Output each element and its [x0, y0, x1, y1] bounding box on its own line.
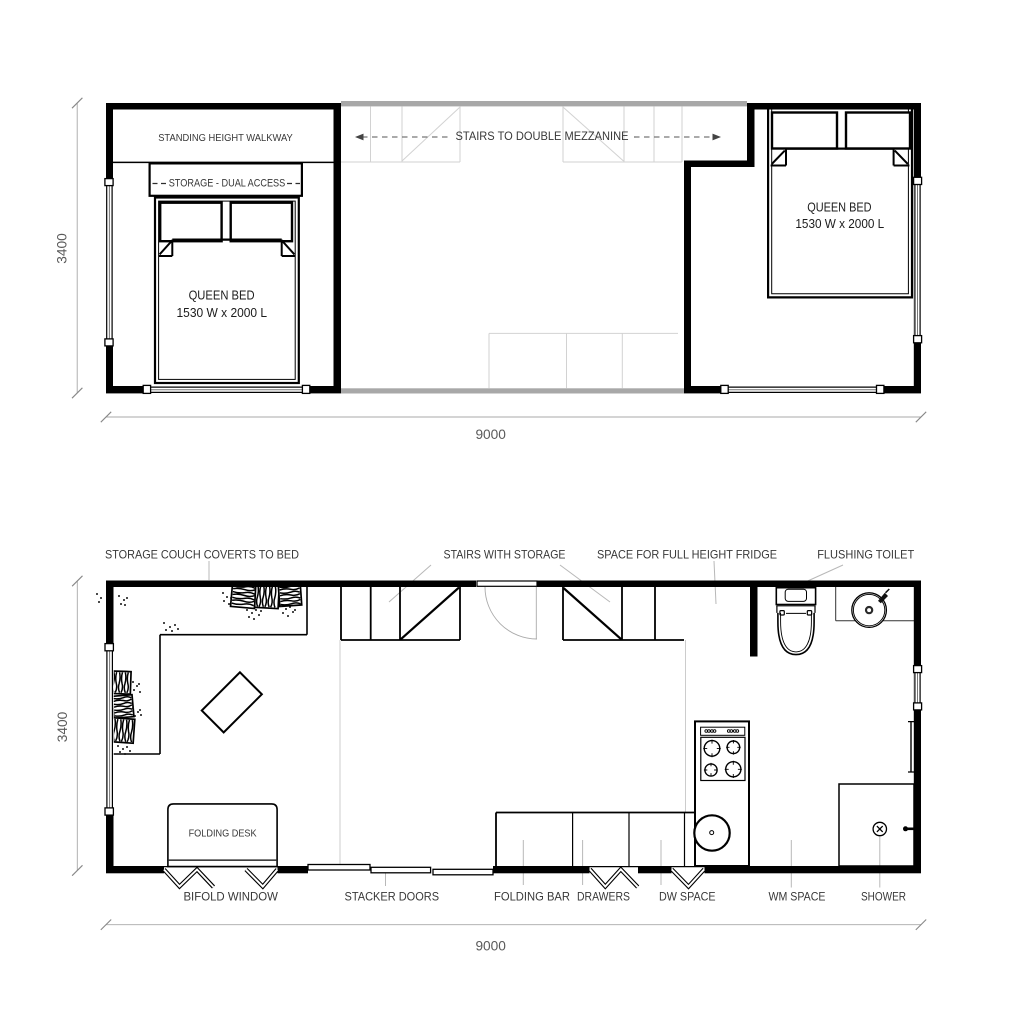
svg-text:SHOWER: SHOWER	[861, 890, 906, 904]
svg-text:STORAGE COUCH COVERTS TO BED: STORAGE COUCH COVERTS TO BED	[105, 548, 299, 562]
svg-text:SPACE FOR FULL HEIGHT FRIDGE: SPACE FOR FULL HEIGHT FRIDGE	[597, 548, 777, 562]
svg-text:STAIRS TO DOUBLE MEZZANINE: STAIRS TO DOUBLE MEZZANINE	[456, 130, 629, 143]
svg-text:WM SPACE: WM SPACE	[769, 890, 826, 904]
svg-text:QUEEN BED: QUEEN BED	[807, 199, 871, 214]
svg-text:DW SPACE: DW SPACE	[659, 890, 716, 904]
svg-text:1530 W x 2000 L: 1530 W x 2000 L	[795, 216, 884, 231]
svg-text:9000: 9000	[475, 426, 506, 442]
svg-text:STANDING HEIGHT WALKWAY: STANDING HEIGHT WALKWAY	[158, 133, 293, 144]
svg-text:3400: 3400	[54, 233, 70, 264]
svg-text:STAIRS WITH STORAGE: STAIRS WITH STORAGE	[444, 548, 566, 562]
svg-text:BIFOLD WINDOW: BIFOLD WINDOW	[183, 890, 278, 904]
svg-text:FOLDING DESK: FOLDING DESK	[189, 828, 257, 839]
svg-text:1530 W x 2000 L: 1530 W x 2000 L	[177, 305, 268, 320]
svg-text:QUEEN BED: QUEEN BED	[189, 288, 255, 303]
svg-text:3400: 3400	[54, 712, 70, 743]
svg-text:STORAGE - DUAL ACCESS: STORAGE - DUAL ACCESS	[169, 178, 286, 190]
svg-text:FOLDING BAR: FOLDING BAR	[494, 890, 570, 904]
svg-text:FLUSHING TOILET: FLUSHING TOILET	[817, 548, 915, 562]
svg-text:9000: 9000	[475, 938, 506, 954]
svg-text:DRAWERS: DRAWERS	[577, 890, 630, 904]
svg-text:STACKER DOORS: STACKER DOORS	[345, 890, 440, 904]
